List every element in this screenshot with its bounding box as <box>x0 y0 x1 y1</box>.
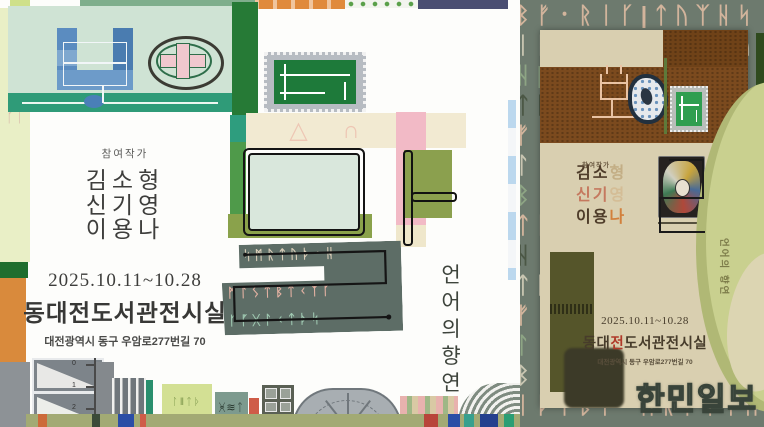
ruler-number: 2 <box>72 404 76 411</box>
venue-address: 대전광역시 동구 우암로277번길 70 <box>555 356 735 366</box>
band-tab <box>480 414 498 427</box>
ruler-number: 1 <box>72 382 76 389</box>
artist-accent: 형 <box>609 165 626 182</box>
cream-glyph-band: △ ∩ ᚢ <box>246 113 466 148</box>
artist-name-row: 신기영 <box>576 185 626 207</box>
artist-main: 김소 <box>576 165 609 182</box>
press-watermark-logo: 한민일보 <box>636 374 758 419</box>
collage-blob-o <box>628 74 668 124</box>
green-bar <box>232 2 258 115</box>
window-pane <box>280 402 292 413</box>
teal-band <box>8 93 232 112</box>
letterform-bieup <box>57 28 133 90</box>
vertical-tagline: 언어의 향연 <box>712 238 732 328</box>
collage-chip-dotted <box>345 0 418 8</box>
artist-name-row: 이용나 <box>576 207 626 229</box>
small-stamp-field <box>676 92 702 126</box>
stamp-line <box>280 74 350 76</box>
bo-stem <box>611 100 613 116</box>
collage-chip-orange <box>255 0 345 9</box>
window-pane <box>280 388 292 399</box>
venue-accent: 전 <box>610 336 624 352</box>
vowel-a-arm <box>411 192 457 202</box>
bieup-inner-outline <box>63 42 127 86</box>
stamp-line <box>681 96 683 120</box>
brown-panel-notch <box>663 30 748 67</box>
white-rule <box>22 102 218 104</box>
blue-dash-strip <box>508 100 516 280</box>
venue-address: 대전광역시 동구 우암로277번길 70 <box>5 333 245 349</box>
left-poster: ᚴᛁ <box>0 0 520 427</box>
stamp-line <box>344 82 346 100</box>
blue-ellipse <box>84 95 104 108</box>
collage-chip-navy <box>418 0 508 9</box>
bo-midline <box>602 82 626 84</box>
ruler-tick <box>86 408 94 410</box>
band-tab <box>504 414 514 427</box>
blob-hole <box>639 87 654 106</box>
rieul-outline <box>221 241 403 336</box>
cross-vertical <box>176 43 190 79</box>
stamp-motif <box>264 52 366 112</box>
artist-main: 이용 <box>576 209 609 226</box>
striped-block <box>112 378 146 418</box>
band-tab <box>424 414 438 427</box>
artist-name: 신기영 <box>5 193 245 218</box>
artist-name-row: 김소형 <box>576 163 626 185</box>
ruler-tick <box>86 364 94 366</box>
stamp-line <box>280 92 325 94</box>
teal-bar <box>230 115 246 142</box>
venue-post: 도서관전시실 <box>624 336 707 352</box>
pattern-row: ᛒᚠ᛫ᚱᛁᚴ|ᛏᚢᛉᚺᛋ <box>516 0 764 30</box>
venue-name: 동대전도서관전시실 <box>5 294 245 328</box>
news-photo-canvas: ᛒᚠ᛫ᚱᛁᚴ|ᛏᚢᛉᚺᛋ ᛁᚦᛏ᛬ᛒᛚᛗᚱᚠ|ᛏᚢ ᚺ|ᛋᚢᛏ᛫ᛒᚱᛁᛏᛗᚦ ᛏ… <box>0 0 764 427</box>
venue-pre: 동대 <box>583 336 611 352</box>
band-tab <box>464 414 474 427</box>
ruler-tick <box>86 386 94 388</box>
frame-inner <box>248 153 360 231</box>
artist-name: 이용나 <box>5 217 245 242</box>
stamp-field <box>274 60 356 104</box>
bieup-mid-line <box>63 62 127 64</box>
green-line <box>664 58 667 134</box>
exhibition-dates: 2025.10.11~10.28 <box>5 270 245 292</box>
bo-prong <box>620 65 622 74</box>
grass-texture <box>550 304 594 314</box>
ruler-motif: 0 1 2 <box>72 358 96 420</box>
bo-base <box>592 116 636 118</box>
olive-bottom-band <box>26 414 520 427</box>
artist-accent: 영 <box>609 187 626 204</box>
frame-motif <box>243 148 365 236</box>
bo-prong <box>606 65 608 74</box>
bo-bieup <box>600 74 628 100</box>
artist-main: 신기 <box>576 187 609 204</box>
participants-label: 참여작가 <box>5 146 245 161</box>
circle-cross-motif <box>148 36 224 90</box>
artist-name: 김소형 <box>5 168 245 193</box>
stamp-line <box>284 64 286 100</box>
stem-line <box>102 85 104 103</box>
band-tab <box>38 414 47 427</box>
window-grid-block <box>262 385 294 415</box>
small-stamp-motif <box>670 86 708 132</box>
artist-accent: 나 <box>609 209 626 226</box>
band-tab <box>118 414 134 427</box>
band-tab <box>140 414 146 427</box>
left-poster-text: 참여작가 김소형 신기영 이용나 2025.10.11~10.28 동대전도서관… <box>5 146 245 349</box>
stamp-line <box>696 110 698 122</box>
band-tab <box>92 414 100 427</box>
window-pane <box>265 402 277 413</box>
band-tab <box>448 414 460 427</box>
vertical-tagline: 언어의 향연 <box>438 262 464 397</box>
rieul-outline-small <box>655 158 709 266</box>
window-pane <box>265 388 277 399</box>
ruler-number: 0 <box>72 360 76 367</box>
